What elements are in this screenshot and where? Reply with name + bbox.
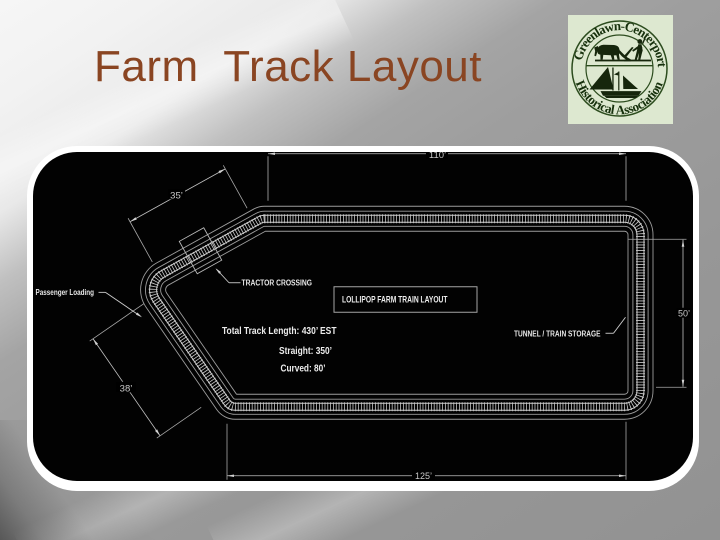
svg-text:110’: 110’	[429, 152, 446, 161]
svg-text:TUNNEL / TRAIN STORAGE: TUNNEL / TRAIN STORAGE	[514, 329, 601, 339]
svg-text:Total Track Length: 430’ EST: Total Track Length: 430’ EST	[222, 325, 337, 337]
svg-text:LOLLIPOP FARM TRAIN LAYOUT: LOLLIPOP FARM TRAIN LAYOUT	[342, 294, 448, 305]
svg-text:Straight: 350’: Straight: 350’	[279, 345, 332, 357]
svg-text:TRACTOR CROSSING: TRACTOR CROSSING	[242, 277, 313, 287]
svg-text:Passenger Loading: Passenger Loading	[36, 288, 95, 297]
svg-text:50’: 50’	[678, 309, 690, 319]
svg-text:Curved: 80’: Curved: 80’	[281, 363, 326, 375]
svg-text:125’: 125’	[415, 471, 432, 481]
svg-text:35’: 35’	[170, 190, 183, 201]
svg-text:38’: 38’	[120, 383, 133, 394]
